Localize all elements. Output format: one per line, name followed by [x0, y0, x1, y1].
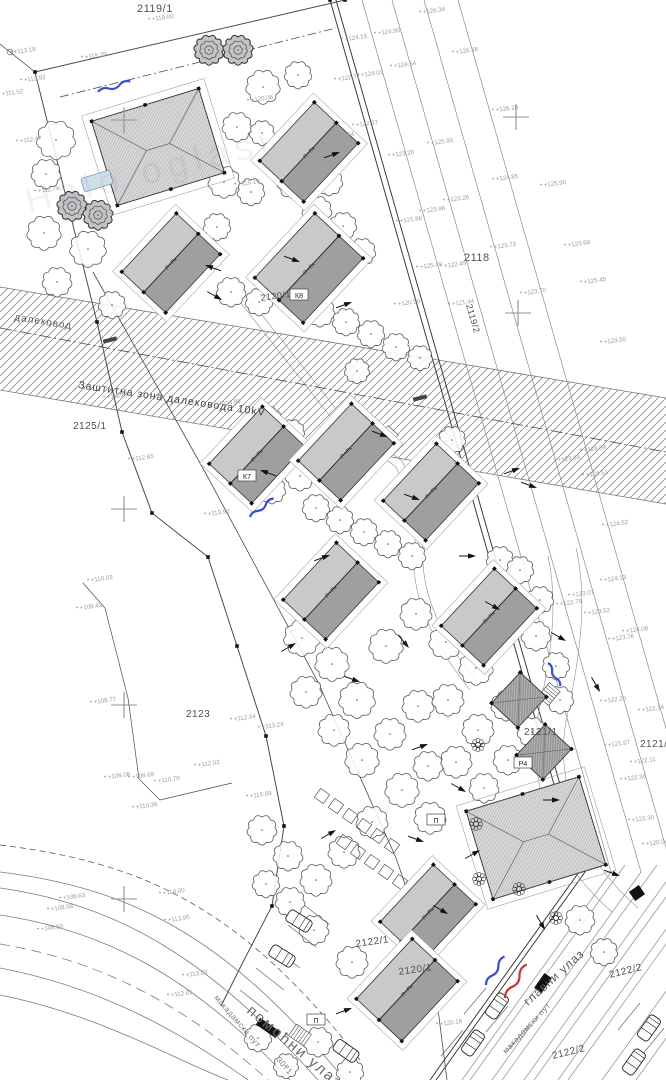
boundary-point	[33, 70, 37, 74]
spot-height-dot	[328, 136, 330, 138]
pergola-post	[384, 838, 399, 853]
spot-height-dot	[556, 603, 558, 605]
spot-height-dot	[341, 38, 343, 40]
tree-symbol	[462, 714, 494, 746]
tree-symbol	[328, 836, 360, 868]
spot-height-dot	[600, 579, 602, 581]
spot-height-dot	[638, 709, 640, 711]
hand-annotation	[484, 955, 506, 986]
parking-stall-line	[441, 1030, 463, 1056]
spot-height: +123.52	[587, 607, 611, 617]
spot-height: +120.54	[645, 838, 666, 848]
leader-arrow-icon	[534, 914, 547, 931]
spot-height-dot	[642, 843, 644, 845]
parcel-number: 2122/2	[551, 1043, 586, 1062]
spot-height-dot	[154, 780, 156, 782]
spot-height: +113.24	[261, 721, 284, 731]
spot-height-dot	[622, 630, 624, 632]
spot-height-dot	[540, 184, 542, 186]
spot-height: +112.02	[197, 759, 220, 769]
car-symbol	[636, 1014, 662, 1043]
spot-height-dot	[167, 994, 169, 996]
spot-height-dot	[182, 974, 184, 976]
object-tag: К7	[243, 474, 251, 481]
spot-height-dot	[580, 281, 582, 283]
spot-height: +123.07	[571, 589, 595, 599]
boundary-point	[235, 644, 239, 648]
spot-height: +126.48	[455, 46, 479, 56]
tree-symbol	[222, 113, 252, 142]
tree-symbol	[247, 816, 277, 845]
spot-height-dot	[230, 718, 232, 720]
spot-height-dot	[16, 140, 18, 142]
spot-height-dot	[419, 210, 421, 212]
leader-arrow-icon	[589, 676, 602, 693]
spot-height: +121.86	[399, 215, 423, 225]
tree-symbol	[345, 743, 379, 777]
spot-height: +122.49	[443, 260, 467, 270]
parcel-boundary	[208, 557, 284, 1006]
spot-height: +124.15	[344, 33, 368, 43]
spot-height: +113.52	[207, 508, 230, 518]
spot-height: +122.77	[337, 73, 361, 83]
spot-height-dot	[600, 700, 602, 702]
tree-symbol	[37, 121, 76, 160]
spot-height-dot	[374, 32, 376, 34]
tree-symbol	[469, 774, 499, 803]
tree-symbol	[70, 231, 107, 267]
tree-symbol	[332, 309, 359, 336]
hand-annotation	[97, 80, 131, 94]
spot-height-dot	[580, 449, 582, 451]
tree-symbol	[590, 939, 617, 966]
parking-stall-line	[464, 988, 486, 1014]
spot-height: +110.03	[90, 574, 113, 584]
spot-height: +108.63	[62, 892, 86, 902]
pergola-post	[378, 864, 393, 879]
pergola-post	[328, 798, 343, 813]
conifer-tree-symbol	[57, 191, 87, 221]
spot-height: +115.69	[249, 790, 272, 800]
spot-height: +108.58	[50, 903, 74, 913]
parcel-boundary	[35, 0, 345, 72]
leader-arrow-icon	[450, 781, 467, 794]
spot-height: +109.08	[107, 771, 131, 781]
object-tag: Р4	[519, 761, 528, 768]
car-symbol	[268, 944, 297, 969]
spot-height-dot	[419, 11, 421, 13]
tree-symbol	[284, 62, 311, 89]
boundary-point	[206, 555, 210, 559]
spot-height: +111.52	[1, 88, 24, 98]
spot-height-dot	[448, 303, 450, 305]
spot-height-dot	[47, 908, 49, 910]
spot-height-dot	[246, 795, 248, 797]
spot-height: +125.49	[419, 261, 443, 271]
boundary-point	[150, 511, 154, 515]
spot-height-dot	[204, 513, 206, 515]
spot-height: +121.67	[607, 739, 631, 749]
tree-symbol	[326, 507, 353, 534]
spot-height-dot	[416, 266, 418, 268]
spot-height-dot	[87, 579, 89, 581]
parcel-boundary	[83, 583, 232, 800]
spot-height: +124.85	[495, 173, 519, 183]
table-set-symbol	[549, 911, 562, 924]
parcel-number: 2125/1	[73, 421, 107, 432]
spot-height-dot	[128, 776, 130, 778]
road-line-ne	[458, 0, 666, 1080]
parcel-number: 2121/2	[640, 739, 666, 750]
tree-symbol	[385, 773, 419, 807]
tree-symbol	[336, 946, 368, 978]
spot-height-dot	[76, 607, 78, 609]
spot-height-dot	[630, 761, 632, 763]
spot-height: +122.36	[623, 773, 647, 783]
spot-height: +125.90	[543, 179, 567, 189]
spot-height: +123.73	[493, 241, 517, 251]
leader-arrow-icon	[459, 553, 476, 558]
spot-height: +123.26	[446, 194, 470, 204]
boundary-point	[282, 824, 286, 828]
spot-height: +109.43	[79, 602, 103, 612]
parking-stall-line	[256, 968, 284, 990]
spot-height-dot	[90, 701, 92, 703]
spot-height: +115.29	[84, 51, 107, 61]
spot-height: +122.30	[631, 814, 655, 824]
spot-height-dot	[148, 18, 150, 20]
tree-symbol	[542, 653, 569, 680]
spot-height: +123.50	[603, 336, 627, 346]
pergola-post	[342, 808, 357, 823]
tree-symbol	[356, 806, 388, 838]
spot-height-dot	[564, 244, 566, 246]
spot-height: +124.90	[377, 27, 401, 37]
tree-symbol	[382, 334, 409, 361]
boundary-point	[270, 904, 274, 908]
parcel-number: 2119/2	[464, 303, 482, 334]
grid-cross	[505, 300, 531, 326]
spot-height-dot	[352, 124, 354, 126]
leader-arrow-icon	[335, 1006, 353, 1017]
parking-stall-line	[618, 1003, 640, 1030]
tree-symbol	[369, 629, 403, 663]
tree-symbol	[302, 495, 329, 522]
spot-height: +122.11	[633, 756, 656, 766]
boundary-point	[264, 734, 268, 738]
object-tag: П	[433, 818, 438, 825]
parcel-number: 2123	[186, 709, 210, 720]
tree-symbol	[398, 543, 425, 570]
spot-height-dot	[388, 154, 390, 156]
spot-height-dot	[234, 183, 236, 185]
tree-symbol	[216, 278, 246, 307]
spot-height-dot	[334, 78, 336, 80]
spot-height-dot	[104, 776, 106, 778]
spot-height-dot	[194, 764, 196, 766]
tree-symbol	[432, 684, 464, 716]
spot-height-dot	[215, 403, 217, 405]
tree-symbol	[440, 746, 472, 778]
spot-height: +123.70	[523, 287, 547, 297]
parcel-number: 2118	[464, 252, 490, 264]
pool	[81, 170, 114, 192]
house: П+Пк	[251, 93, 368, 211]
spot-height: +110.70	[157, 775, 180, 785]
boundary-point	[120, 430, 124, 434]
tree-symbol	[98, 292, 125, 319]
spot-height: +120.18	[439, 1018, 463, 1028]
tree-symbol	[273, 842, 303, 871]
spot-height: +123.76	[611, 633, 635, 643]
spot-height: +125.45	[583, 276, 607, 286]
spot-height: +113.02	[185, 969, 208, 979]
spot-height-dot	[132, 806, 134, 808]
spot-height: +113.95	[167, 914, 190, 924]
tree-symbol	[374, 718, 406, 750]
spot-height: +110.36	[135, 801, 158, 811]
conifer-tree-symbol	[223, 35, 253, 65]
spot-height-dot	[608, 638, 610, 640]
spot-height-dot	[258, 726, 260, 728]
spot-height-dot	[128, 458, 130, 460]
spot-height-dot	[492, 109, 494, 111]
spot-height-dot	[492, 178, 494, 180]
spot-height: +112.34	[233, 713, 256, 723]
tree-symbol	[350, 519, 377, 546]
house	[82, 79, 235, 216]
car-symbol	[621, 1048, 647, 1077]
leader-arrow-icon	[320, 828, 337, 841]
spot-height-dot	[443, 199, 445, 201]
road-line-sw	[0, 888, 318, 1080]
spot-height-dot	[582, 474, 584, 476]
spot-height-dot	[59, 897, 61, 899]
spot-height-dot	[247, 99, 249, 101]
tree-symbol	[300, 864, 332, 896]
parcel-number: 2122/1	[355, 934, 390, 950]
spot-height-dot	[600, 341, 602, 343]
spot-height-dot	[620, 778, 622, 780]
boundary-point	[328, 0, 332, 2]
object-tag: П	[313, 1018, 318, 1025]
tree-symbol	[565, 906, 595, 935]
spot-height-dot	[452, 51, 454, 53]
leader-arrow-icon	[550, 630, 567, 643]
object-tag: К8	[295, 293, 303, 300]
leader-arrow-icon	[407, 834, 425, 845]
spot-height-dot	[490, 246, 492, 248]
spot-height: +108.50	[40, 923, 64, 933]
spot-height: +112.05	[170, 989, 193, 999]
street-name: макадамски пут	[501, 1001, 553, 1055]
spot-height-dot	[604, 744, 606, 746]
leader-arrow-icon	[411, 742, 429, 753]
road-line-sw	[0, 968, 248, 1080]
tree-symbol	[339, 682, 376, 718]
spot-height: +122.37	[355, 119, 379, 129]
tree-symbol	[407, 346, 432, 371]
spot-height-dot	[602, 524, 604, 526]
boundary-point	[95, 320, 99, 324]
spot-height-dot	[440, 265, 442, 267]
spot-height-dot	[103, 396, 105, 398]
spot-height-dot	[20, 79, 22, 81]
street-name: главни улаз	[521, 947, 587, 1009]
parcel-number: 2122/2	[608, 962, 643, 981]
boundary-point	[343, 0, 347, 2]
spot-height-dot	[628, 819, 630, 821]
site-plan-svg: П+ПкП+ПкП+ПкП+ПкП+ПкП+ПкП+ПкП+ПкП+ПкП+Пк…	[0, 0, 666, 1080]
spot-height-dot	[584, 612, 586, 614]
spot-height: +112.65	[131, 453, 154, 463]
spot-height: +124.03	[360, 69, 384, 79]
tree-symbol	[402, 690, 434, 722]
conifer-tree-symbol	[194, 35, 224, 65]
spot-height: +125.93	[430, 137, 454, 147]
spot-height-dot	[10, 51, 12, 53]
tree-symbol	[413, 752, 443, 781]
spot-height: +124.64	[393, 60, 417, 70]
spot-height: +124.52	[605, 519, 629, 529]
spot-height: +109.69	[131, 771, 155, 781]
parcel-number: 2121/1	[524, 727, 558, 738]
tree-symbol	[400, 598, 432, 630]
spot-height: +124.13	[603, 574, 627, 584]
spot-height: +123.96	[422, 205, 446, 215]
spot-height-dot	[554, 459, 556, 461]
spot-height-dot	[436, 1023, 438, 1025]
grid-cross	[111, 886, 137, 912]
spot-height-dot	[427, 142, 429, 144]
spot-height: +114.00	[162, 887, 185, 897]
tree-symbol	[357, 321, 384, 348]
spot-height-dot	[568, 594, 570, 596]
tree-symbol	[27, 216, 61, 250]
site-plan: П+ПкП+ПкП+ПкП+ПкП+ПкП+ПкП+ПкП+ПкП+ПкП+Пк…	[0, 0, 666, 1080]
spot-height-dot	[159, 892, 161, 894]
road-line-sw	[0, 995, 228, 1080]
tree-symbol	[374, 531, 401, 558]
spot-height-dot	[396, 220, 398, 222]
spot-height-dot	[37, 928, 39, 930]
tree-symbol	[252, 871, 279, 898]
spot-height-dot	[394, 303, 396, 305]
spot-height: +123.28	[391, 149, 415, 159]
spot-height-dot	[520, 292, 522, 294]
tree-symbol	[42, 268, 72, 297]
spot-height: +113.92	[23, 74, 46, 84]
spot-height: +123.69	[567, 239, 591, 249]
spot-height: +113.18	[13, 46, 36, 56]
pergola-post	[364, 854, 379, 869]
spot-height-dot	[390, 65, 392, 67]
pergola-post	[314, 788, 329, 803]
table-set-symbol	[472, 872, 485, 885]
spot-height: +122.20	[603, 695, 627, 705]
entrance-marker	[629, 885, 645, 901]
spot-height-dot	[81, 56, 83, 58]
spot-height-dot	[164, 919, 166, 921]
tree-symbol	[318, 714, 350, 746]
grid-cross	[111, 496, 137, 522]
road-line-sw	[0, 915, 290, 1080]
spot-height-dot	[34, 190, 36, 192]
